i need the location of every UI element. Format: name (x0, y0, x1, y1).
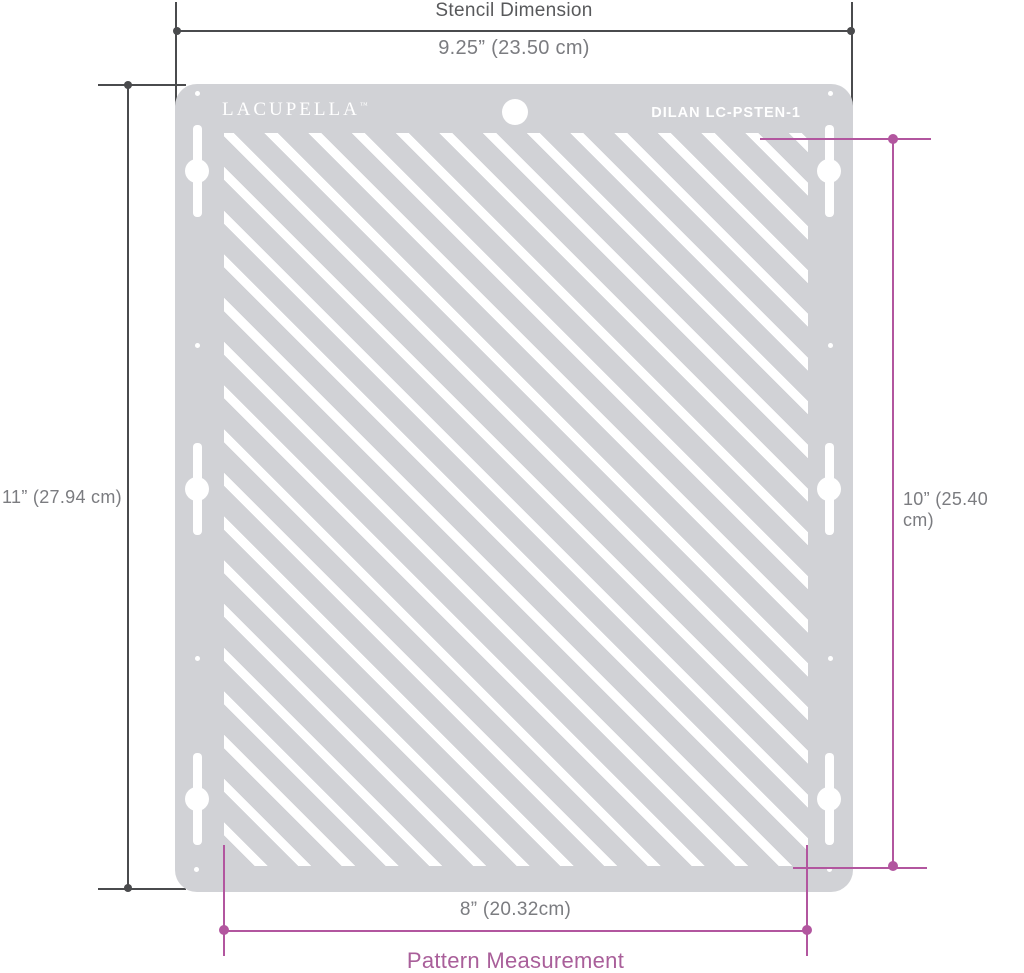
dimension-endpoint-dot (847, 27, 855, 35)
model-code: DILAN LC-PSTEN-1 (651, 105, 801, 121)
hanging-hole (502, 99, 528, 125)
stencil-height-value: 11” (27.94 cm) (0, 487, 124, 508)
brand-name: LACUPELLA (222, 99, 360, 120)
registration-dot (195, 91, 200, 96)
pattern-measurement-title: Pattern Measurement (224, 948, 807, 973)
stencil: LACUPELLA™ DILAN LC-PSTEN-1 (175, 84, 853, 892)
alignment-hole (817, 159, 841, 183)
left-extension-line-bottom (98, 888, 186, 890)
registration-dot (195, 343, 200, 348)
dimension-endpoint-dot (888, 861, 898, 871)
alignment-hole (817, 787, 841, 811)
alignment-hole (185, 787, 209, 811)
brand-logo: LACUPELLA™ (222, 99, 368, 121)
alignment-hole (185, 159, 209, 183)
stencil-dimension-diagram: Stencil Dimension 9.25” (23.50 cm) 11” (… (0, 0, 1024, 973)
right-dimension-line (892, 138, 894, 867)
dimension-endpoint-dot (888, 134, 898, 144)
dimension-endpoint-dot (802, 925, 812, 935)
diagonal-stripe-pattern (224, 133, 808, 866)
left-extension-line-top (98, 84, 186, 86)
registration-dot (194, 867, 199, 872)
stencil-dimension-title: Stencil Dimension (176, 0, 852, 22)
bottom-dimension-line (224, 930, 807, 932)
right-extension-line-top (760, 138, 931, 140)
stencil-width-value: 9.25” (23.50 cm) (176, 37, 852, 60)
trademark-symbol: ™ (360, 101, 368, 110)
right-extension-line-bottom (793, 867, 927, 869)
left-dimension-line (127, 84, 129, 889)
dimension-endpoint-dot (173, 27, 181, 35)
dimension-endpoint-dot (124, 81, 132, 89)
registration-dot (828, 91, 833, 96)
registration-dot (195, 656, 200, 661)
dimension-endpoint-dot (124, 884, 132, 892)
pattern-width-value: 8” (20.32cm) (224, 899, 807, 921)
alignment-hole (817, 477, 841, 501)
dimension-endpoint-dot (219, 925, 229, 935)
top-dimension-line (176, 30, 852, 32)
registration-dot (828, 343, 833, 348)
pattern-height-value: 10” (25.40 cm) (903, 489, 1024, 531)
registration-dot (828, 656, 833, 661)
alignment-hole (185, 477, 209, 501)
